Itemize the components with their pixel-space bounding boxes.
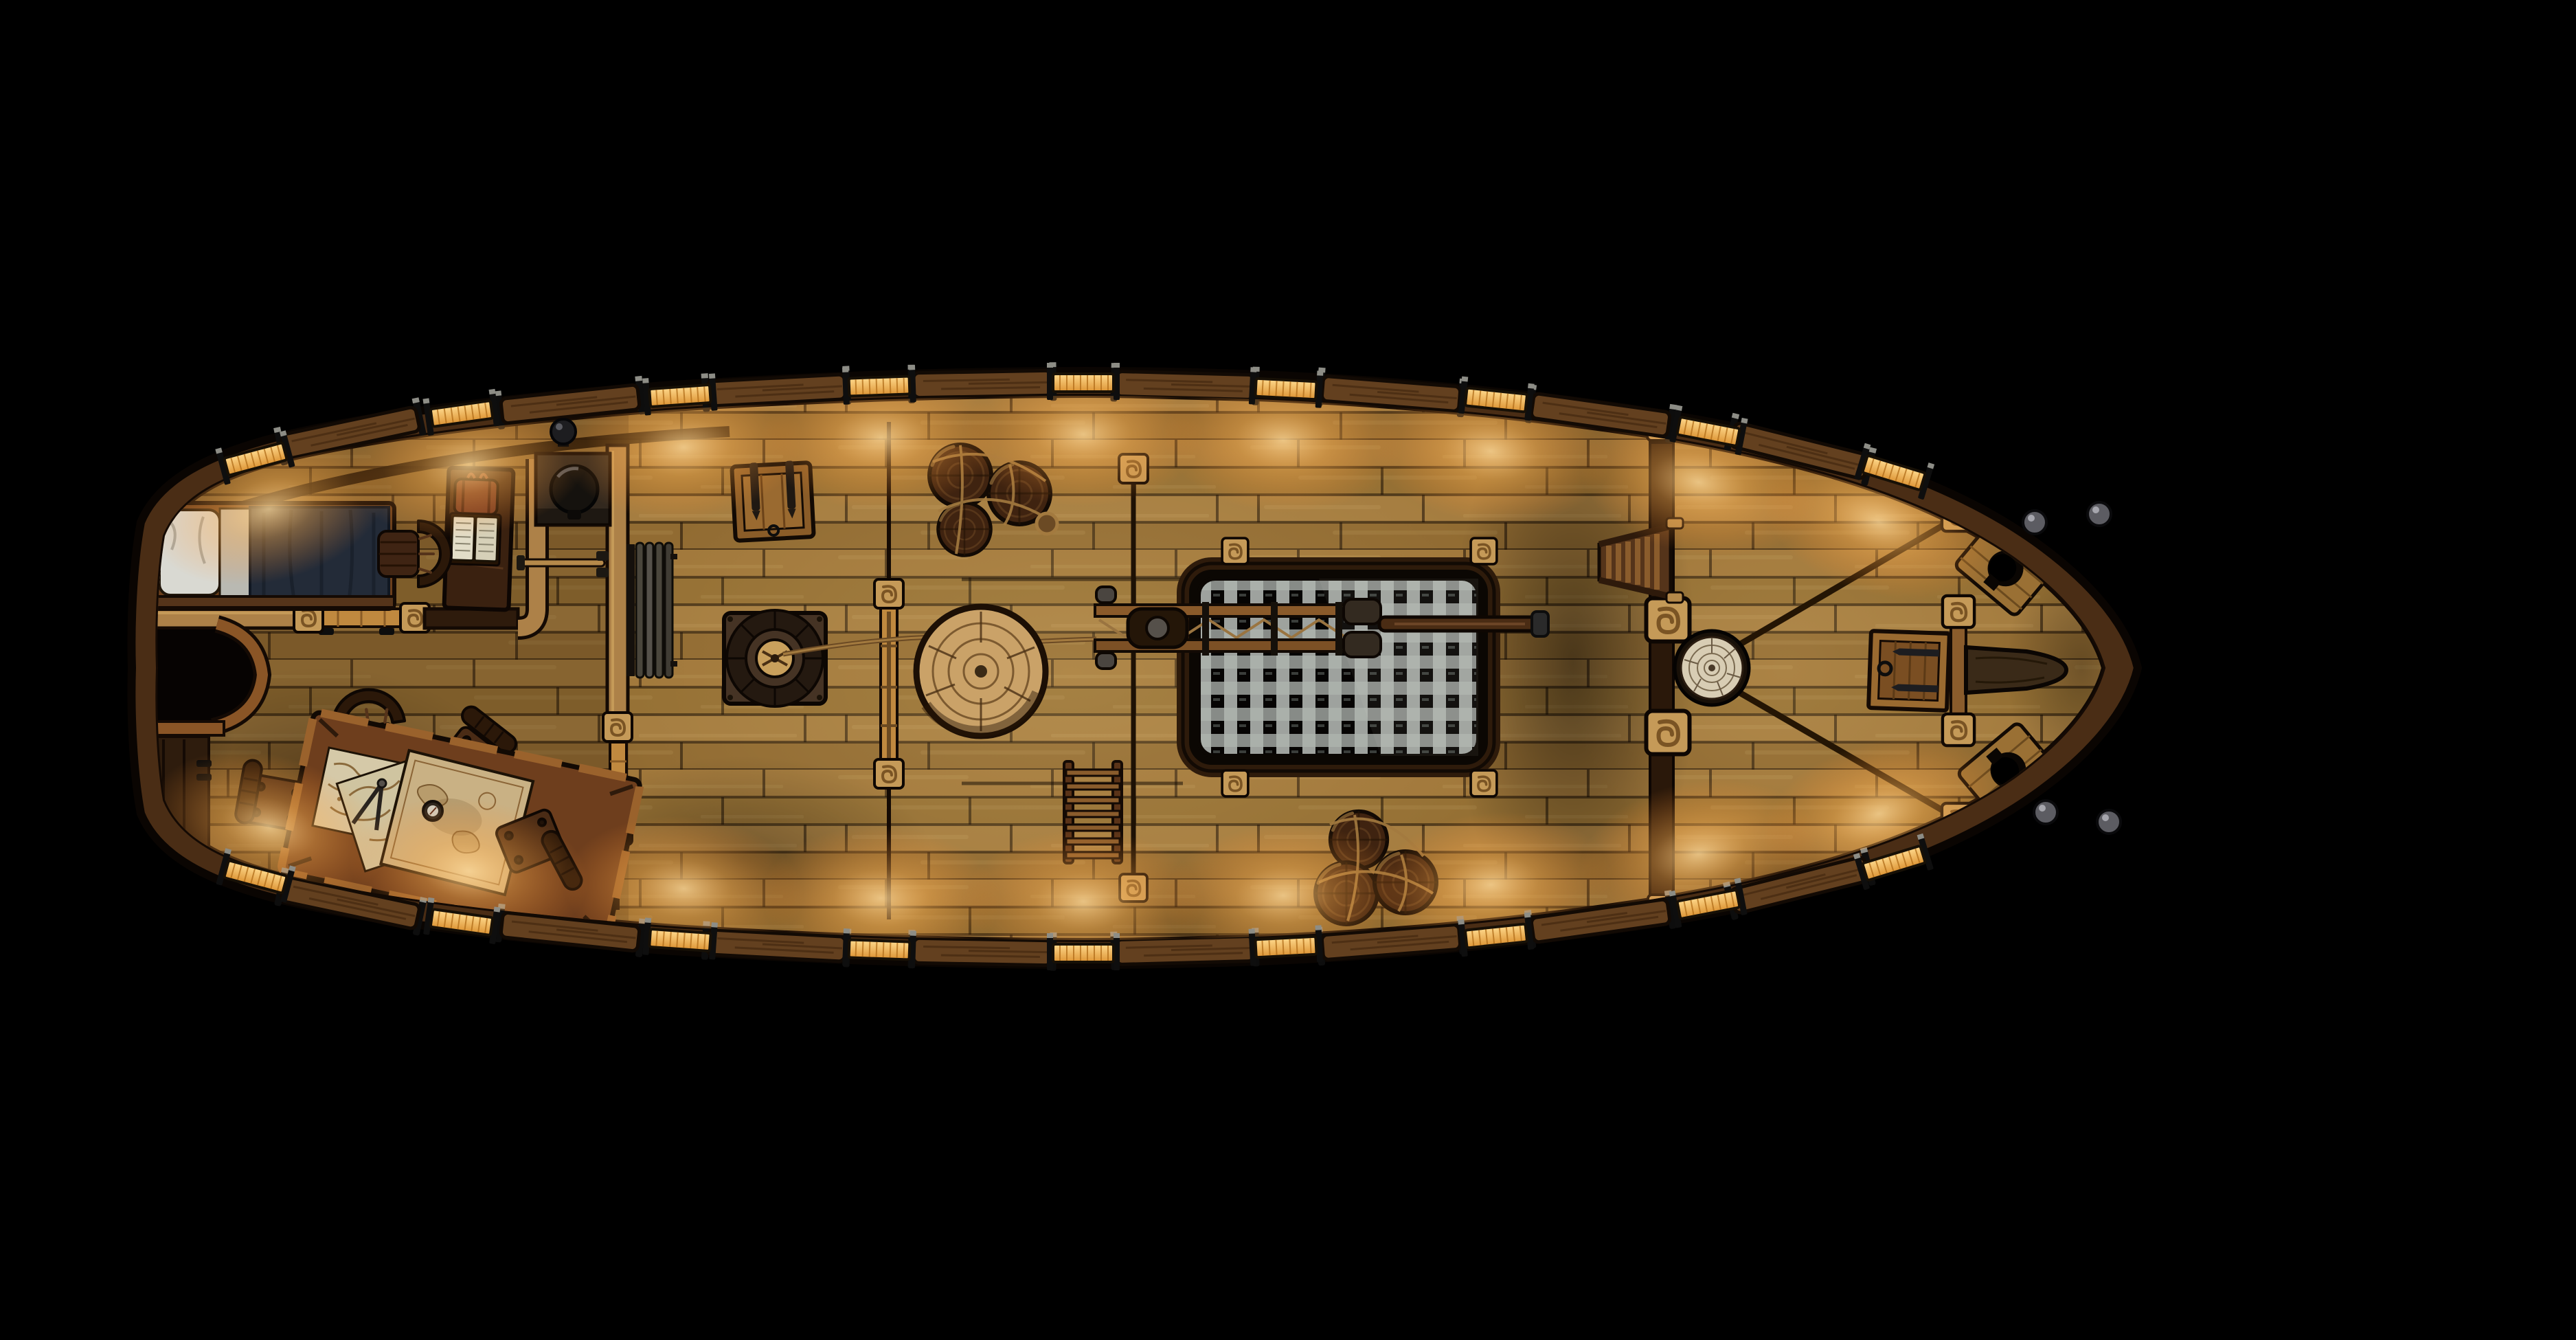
- cable-spool: [916, 607, 1046, 736]
- cargo-grate: [1183, 538, 1497, 796]
- mast-step-post-south: [1647, 711, 1690, 755]
- battle-map-canvas: [0, 0, 2576, 1340]
- knot-post: [603, 713, 632, 741]
- mast-step-post-north: [1647, 599, 1690, 642]
- radiator: [626, 543, 677, 678]
- stern-arch-window: [144, 624, 262, 735]
- ship-deck-map: [0, 0, 2576, 1340]
- capstan: [724, 610, 826, 706]
- trapdoor-hatch: [1868, 631, 1950, 711]
